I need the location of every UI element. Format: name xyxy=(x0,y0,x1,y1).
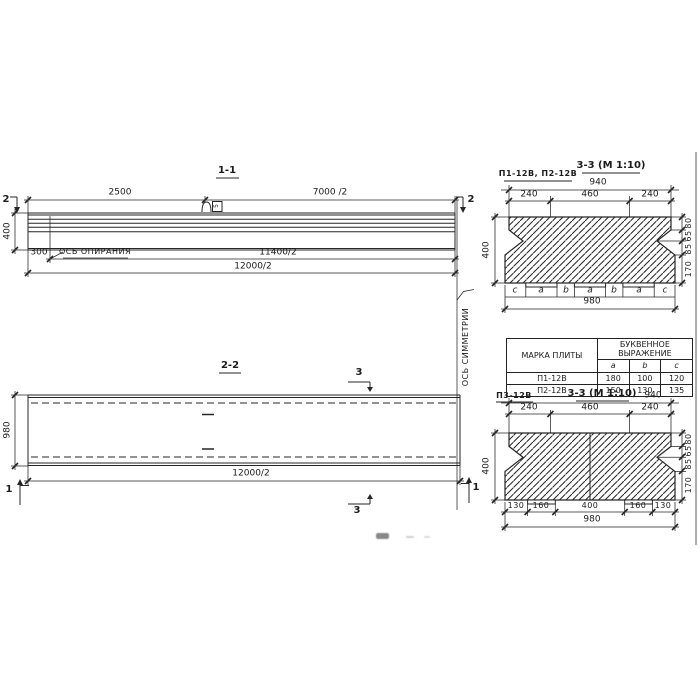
dim-80-label: 80 xyxy=(685,433,693,444)
dim-130-label: 130 xyxy=(655,502,672,510)
letter-a-2: a xyxy=(587,287,593,296)
support-axis-label: ОСЬ ОПИРАНИЯ xyxy=(59,248,131,256)
cut-marker-2-left: 2 xyxy=(3,195,10,205)
dim-7000-2-label: 7000 /2 xyxy=(313,189,348,198)
letter-b-1: b xyxy=(563,287,569,296)
section-3-3-bottom-linework xyxy=(491,398,686,531)
dim-11400-2-label: 11400/2 xyxy=(259,249,296,258)
scan-smudge xyxy=(424,536,430,538)
dim-400-elevation-label: 400 xyxy=(4,222,13,239)
table-row: П1-12В 180 100 120 xyxy=(507,372,693,384)
dim-300-label: 300 xyxy=(30,249,47,258)
dim-12000-plan-label: 12000/2 xyxy=(232,470,269,479)
symmetry-axis-label: ОСЬ СИММЕТРИИ xyxy=(462,308,470,387)
dim-65-label: 65 xyxy=(685,445,693,456)
dim-170-label: 170 xyxy=(685,477,693,494)
dim-400-mid-label: 400 xyxy=(582,502,599,510)
cell-mark: П1-12В xyxy=(507,372,598,384)
section-2-2-linework xyxy=(11,373,472,505)
letter-c-1: c xyxy=(513,287,518,296)
cell-a: 180 xyxy=(597,372,629,384)
cross-section-p1-p2 xyxy=(505,217,675,283)
section-3-3-top-title: 3-3 (М 1:10) xyxy=(577,161,646,171)
dim-940-bottom-label: 940 xyxy=(644,392,661,401)
table-col-b: b xyxy=(629,360,661,372)
section-3-3-bottom-title: 3-3 (М 1:10) xyxy=(568,389,637,399)
dim-170-label: 170 xyxy=(685,261,693,278)
section-2-2-title: 2-2 xyxy=(221,361,239,371)
cut-marker-2-right: 2 xyxy=(468,195,475,205)
table-header-expr: БУКВЕННОЕ ВЫРАЖЕНИЕ xyxy=(597,339,692,360)
section-1-1-title: 1-1 xyxy=(218,166,236,176)
dim-80-label: 80 xyxy=(685,217,693,228)
dim-65-label: 65 xyxy=(685,230,693,241)
letter-a-3: a xyxy=(636,287,642,296)
dim-240-right-label: 240 xyxy=(641,404,658,413)
scan-smudge xyxy=(376,533,389,539)
cut-marker-3-top: 3 xyxy=(356,368,363,378)
lifting-loop-icon xyxy=(202,202,211,212)
cell-c: 135 xyxy=(661,384,693,396)
dim-980-plan-label: 980 xyxy=(4,421,13,438)
dim-160-label: 160 xyxy=(533,502,550,510)
dim-240-right-label: 240 xyxy=(641,191,658,200)
table-header-mark: МАРКА ПЛИТЫ xyxy=(507,339,598,373)
table-col-a: a xyxy=(597,360,629,372)
cut-marker-1-left: 1 xyxy=(6,485,13,495)
dim-160-label: 160 xyxy=(630,502,647,510)
dim-460-label: 460 xyxy=(581,404,598,413)
table-col-c: c xyxy=(661,360,693,372)
dim-460-label: 460 xyxy=(581,191,598,200)
beam-outline xyxy=(28,213,455,250)
dim-12000-2-label: 12000/2 xyxy=(234,263,271,272)
dim-400-label: 400 xyxy=(483,241,492,258)
dim-980-label: 980 xyxy=(583,298,600,307)
dim-980-label: 980 xyxy=(583,516,600,525)
dim-2500-label: 2500 xyxy=(109,189,132,198)
cut-marker-3-bottom: 3 xyxy=(354,506,361,516)
dim-400-label: 400 xyxy=(483,457,492,474)
dim-940-top-label: 940 xyxy=(589,179,606,188)
cell-b: 100 xyxy=(629,372,661,384)
dim-85-label: 85 xyxy=(685,458,693,469)
slab-plan-outline xyxy=(28,395,460,466)
letter-c-2: c xyxy=(663,287,668,296)
plates-p1-p2-label: П1-12В, П2-12В xyxy=(499,170,577,178)
dim-240-left-label: 240 xyxy=(520,191,537,200)
hook-mark-label: 5 xyxy=(214,204,220,208)
cut-marker-1-right: 1 xyxy=(473,483,480,493)
scan-smudge xyxy=(406,536,414,538)
dim-240-left-label: 240 xyxy=(520,404,537,413)
letter-a-1: a xyxy=(538,287,544,296)
cell-c: 120 xyxy=(661,372,693,384)
letter-b-2: b xyxy=(611,287,617,296)
dim-85-label: 85 xyxy=(685,243,693,254)
dim-130-label: 130 xyxy=(508,502,525,510)
blueprint-canvas: 1-1 2500 7000 /2 2 2 400 300 ОСЬ ОПИРАНИ… xyxy=(0,0,700,700)
plate-p3-label: П3-12В xyxy=(496,392,532,400)
